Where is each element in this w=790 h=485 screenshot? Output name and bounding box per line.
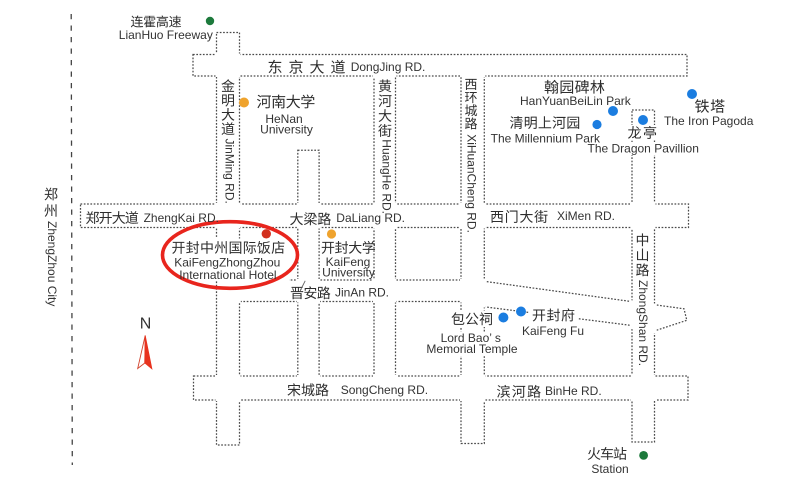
svg-text:Memorial Temple: Memorial Temple [426,342,517,356]
svg-text:International Hotel: International Hotel [179,268,276,282]
svg-text:University: University [322,265,375,279]
svg-text:XiMen RD.: XiMen RD. [557,209,615,223]
svg-text:SongCheng RD.: SongCheng RD. [341,383,428,397]
svg-text:The Dragon Pavillion: The Dragon Pavillion [587,141,698,155]
svg-text:LianHuo Freeway: LianHuo Freeway [119,28,213,42]
svg-text:DongJing RD.: DongJing RD. [351,60,426,74]
svg-text:JinAn RD.: JinAn RD. [335,285,389,299]
svg-text:XiHuanCheng RD.: XiHuanCheng RD. [465,134,479,233]
svg-text:The Iron Pagoda: The Iron Pagoda [664,114,754,128]
svg-text:DaLiang RD.: DaLiang RD. [336,211,405,225]
svg-text:Station: Station [591,462,628,476]
svg-text:ZhongShan RD.: ZhongShan RD. [636,280,650,366]
svg-text:HanYuanBeiLin Park: HanYuanBeiLin Park [520,94,632,108]
svg-text:JinMing RD.: JinMing RD. [223,139,237,204]
svg-text:The Millennium Park: The Millennium Park [491,131,601,145]
svg-text:N: N [140,316,152,333]
svg-text:University: University [260,122,313,136]
svg-text:BinHe RD.: BinHe RD. [545,384,602,398]
svg-text:KaiFeng Fu: KaiFeng Fu [522,324,584,338]
svg-text:ZhengZhou City: ZhengZhou City [45,221,59,306]
svg-text:HuangHe RD.: HuangHe RD. [379,139,393,214]
svg-text:ZhengKai RD.: ZhengKai RD. [144,211,219,225]
